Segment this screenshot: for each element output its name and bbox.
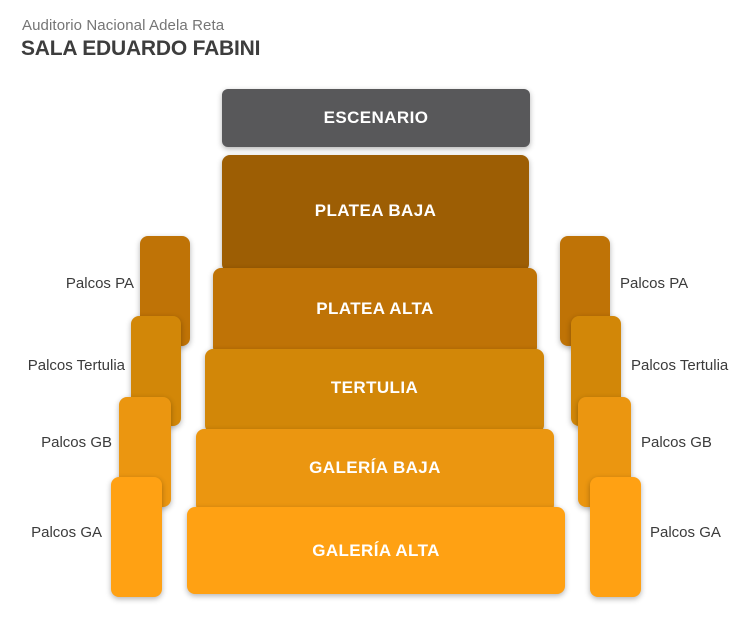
palco-label-left-ga: Palcos GA <box>31 524 102 542</box>
palco-box-left-ga[interactable] <box>111 477 162 597</box>
palco-label-left-gb: Palcos GB <box>41 434 112 452</box>
section-galeria-alta[interactable]: GALERÍA ALTA <box>187 507 565 594</box>
venue-name: Auditorio Nacional Adela Reta <box>22 17 224 34</box>
palco-label-left-pa: Palcos PA <box>66 275 134 293</box>
palco-box-right-ga[interactable] <box>590 477 641 597</box>
palco-label-left-tertulia: Palcos Tertulia <box>28 357 125 375</box>
stage-label: ESCENARIO <box>324 108 429 128</box>
section-galeria-baja-label: GALERÍA BAJA <box>309 458 441 478</box>
palco-label-right-tertulia: Palcos Tertulia <box>631 357 728 375</box>
seating-map: Auditorio Nacional Adela Reta SALA EDUAR… <box>0 0 750 620</box>
section-platea-baja-label: PLATEA BAJA <box>315 201 437 221</box>
section-platea-alta[interactable]: PLATEA ALTA <box>213 268 537 355</box>
section-tertulia-label: TERTULIA <box>331 378 418 398</box>
section-galeria-baja[interactable]: GALERÍA BAJA <box>196 429 554 513</box>
palco-label-right-pa: Palcos PA <box>620 275 688 293</box>
stage-block: ESCENARIO <box>222 89 530 147</box>
section-platea-alta-label: PLATEA ALTA <box>316 299 433 319</box>
section-platea-baja[interactable]: PLATEA BAJA <box>222 155 529 272</box>
page-title: SALA EDUARDO FABINI <box>21 37 260 61</box>
palco-label-right-gb: Palcos GB <box>641 434 712 452</box>
palco-label-right-ga: Palcos GA <box>650 524 721 542</box>
section-tertulia[interactable]: TERTULIA <box>205 349 544 433</box>
section-galeria-alta-label: GALERÍA ALTA <box>312 541 440 561</box>
